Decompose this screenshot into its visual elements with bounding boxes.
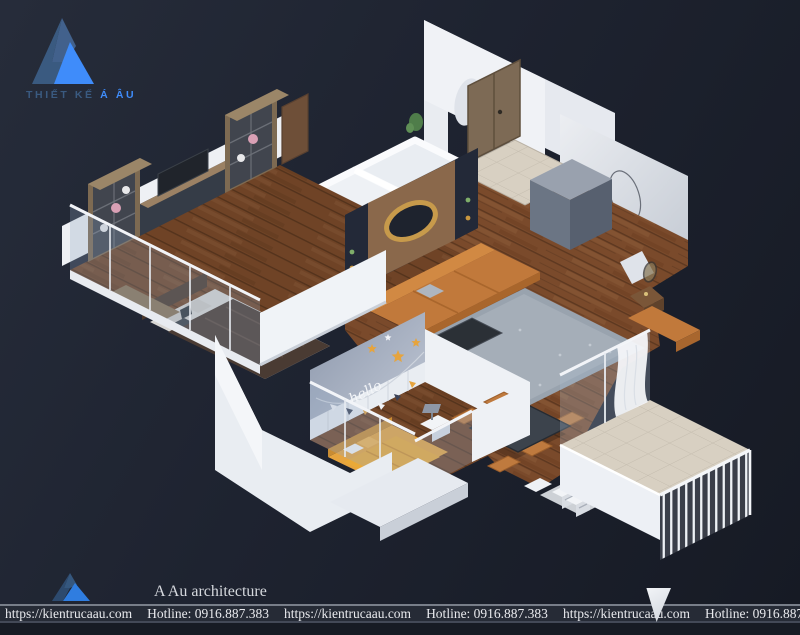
footer-watermark-text: Hotline: 0916.887.383 [147,606,269,622]
footer-watermark-text: Hotline: 0916.887.383 [705,606,800,622]
hanging-clothes-white [122,186,130,194]
logo-bottom-name: A Au architecture [154,583,267,602]
tv-wall-shelf-right [455,148,478,240]
footer-watermark-text: https://kientrucaau.com [5,606,132,622]
hanging-clothes-pink [111,203,121,213]
footer-watermark-text: https://kientrucaau.com [284,606,411,622]
shelf-plant [350,250,355,255]
logo-bottom: A Au architecture [50,572,267,602]
entrance-door-handle [498,110,502,114]
kids-lamp-shade [422,404,441,413]
promo-image-canvas: hello [0,0,800,635]
console-decor [644,292,648,296]
footer-lower-strip [0,623,800,635]
footer-watermark-bar: https://kientrucaau.comHotline: 0916.887… [0,604,800,623]
logo-triangle-small-icon [50,572,98,602]
entry-plant-leaf [406,123,414,133]
hanging-clothes-pink [248,134,258,144]
logo-triangle-icon [30,16,106,86]
logo-top-wordmark: THIẾT KẾ Á ÂU [26,89,176,101]
hanging-clothes-white [237,154,245,162]
footer-watermark-text: https://kientrucaau.com [563,606,690,622]
bedroom-door [282,94,308,164]
shelf-plant [466,198,471,203]
footer-watermark-text: Hotline: 0916.887.383 [426,606,548,622]
logo-top: THIẾT KẾ Á ÂU [26,16,176,101]
shelf-decor [466,216,471,221]
